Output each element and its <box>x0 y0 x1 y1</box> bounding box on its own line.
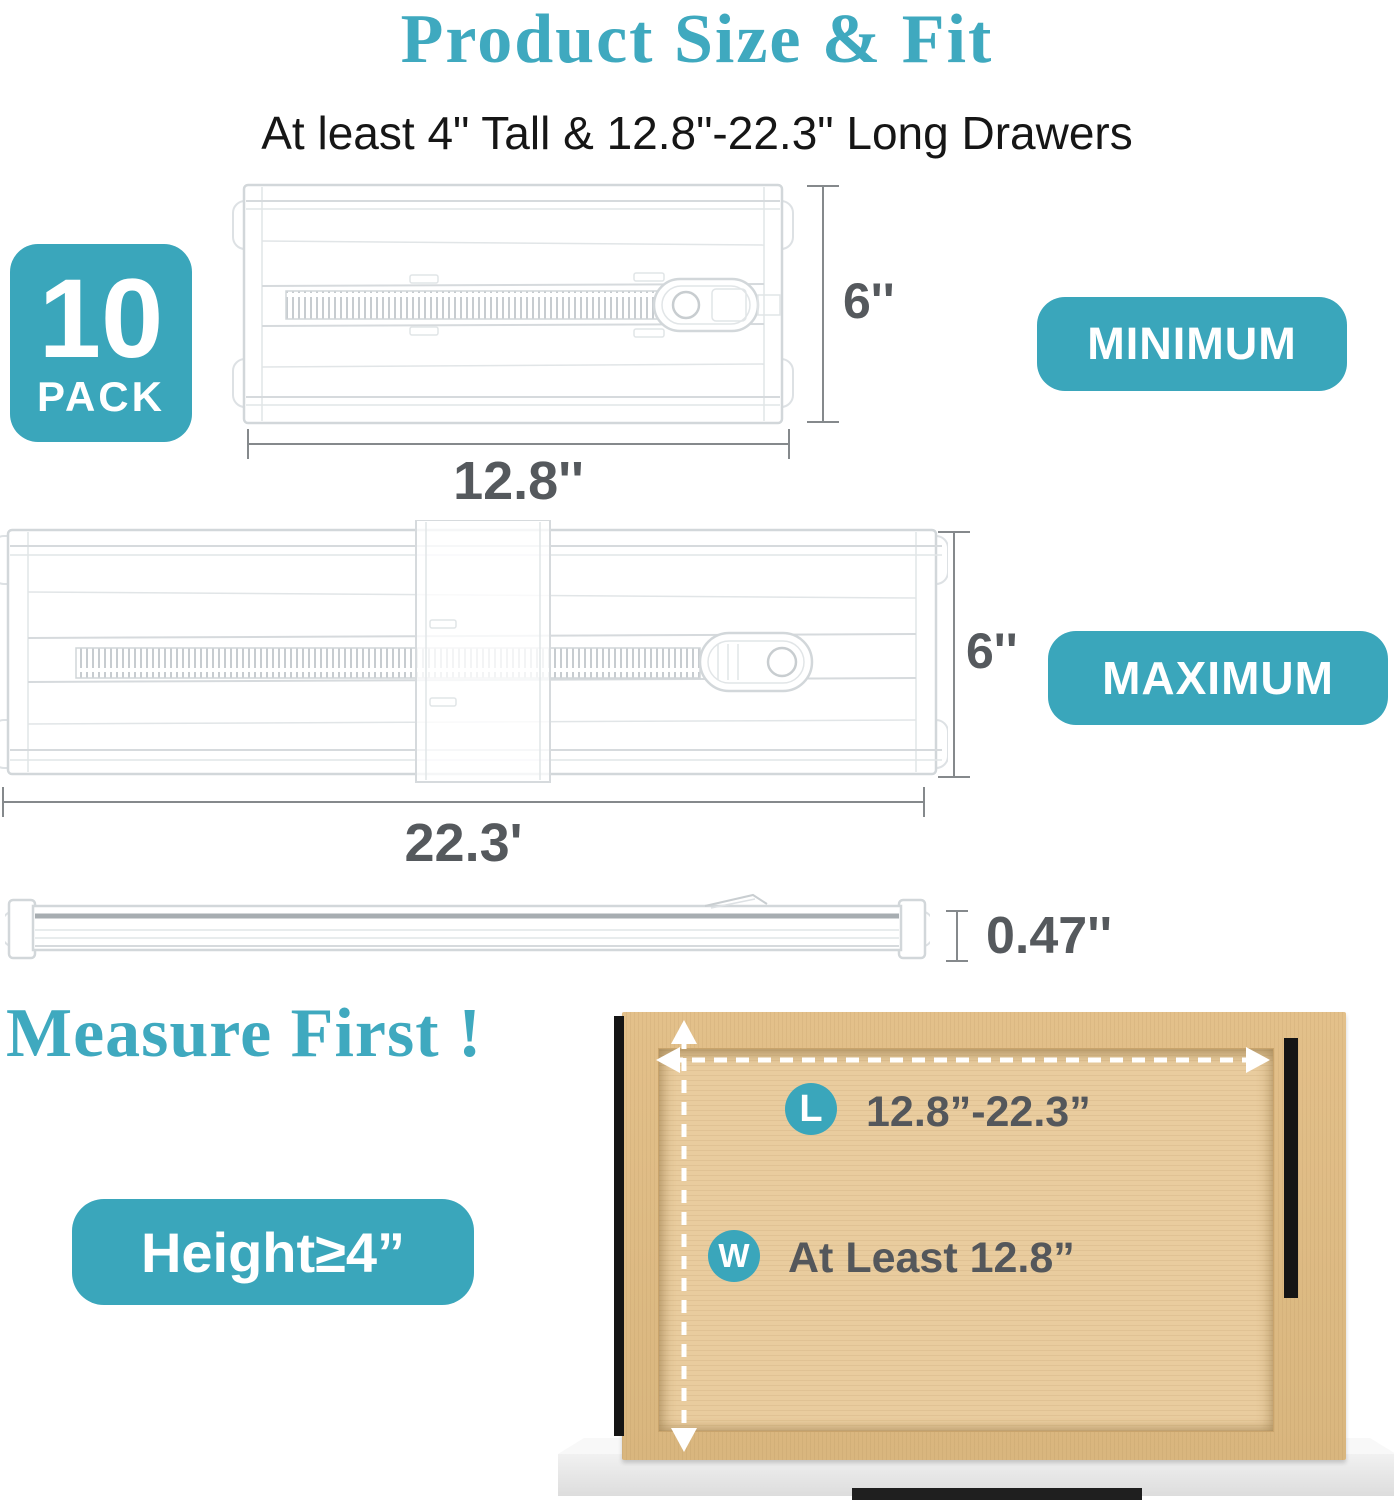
ratchet-strap <box>76 648 700 678</box>
product-size-fit-infographic: Product Size & Fit At least 4" Tall & 12… <box>0 0 1394 1500</box>
divider-side-view-illustration <box>5 890 930 965</box>
maximum-badge: MAXIMUM <box>1048 631 1388 725</box>
divider-minimum-illustration <box>230 183 796 425</box>
pack-count: 10 <box>39 267 164 370</box>
pack-unit: PACK <box>37 373 165 421</box>
thickness-label: 0.47'' <box>986 906 1112 966</box>
slide-lock <box>700 633 812 691</box>
width-minimum-value: At Least 12.8” <box>788 1234 1075 1283</box>
height-requirement-badge: Height≥4” <box>72 1199 474 1305</box>
min-length-dimension-line <box>247 443 790 445</box>
length-marker: L <box>785 1083 837 1135</box>
min-length-label: 12.8'' <box>247 450 790 512</box>
width-arrow-icon <box>671 1020 697 1452</box>
ratchet-strap <box>286 291 658 319</box>
min-height-dimension-line <box>822 185 824 423</box>
page-subtitle: At least 4" Tall & 12.8"-22.3" Long Draw… <box>0 106 1394 160</box>
length-range-value: 12.8”-22.3” <box>866 1088 1091 1137</box>
page-title: Product Size & Fit <box>0 0 1394 80</box>
strap-tail-detail <box>705 895 767 906</box>
min-height-label: 6'' <box>843 272 895 330</box>
thickness-dimension-line <box>956 910 958 962</box>
max-height-dimension-line <box>953 531 955 778</box>
max-height-label: 6'' <box>966 622 1018 680</box>
measure-first-heading: Measure First ! <box>6 994 482 1074</box>
drawer-illustration: L 12.8”-22.3” W At Least 12.8” <box>558 1008 1394 1500</box>
max-length-label: 22.3' <box>2 812 925 874</box>
center-overlap-panel <box>416 520 550 782</box>
divider-maximum-illustration <box>0 520 948 784</box>
pack-count-badge: 10 PACK <box>10 244 192 442</box>
length-arrow-icon <box>656 1047 1270 1073</box>
max-length-dimension-line <box>2 801 925 803</box>
width-marker: W <box>708 1230 760 1282</box>
minimum-badge: MINIMUM <box>1037 297 1347 391</box>
